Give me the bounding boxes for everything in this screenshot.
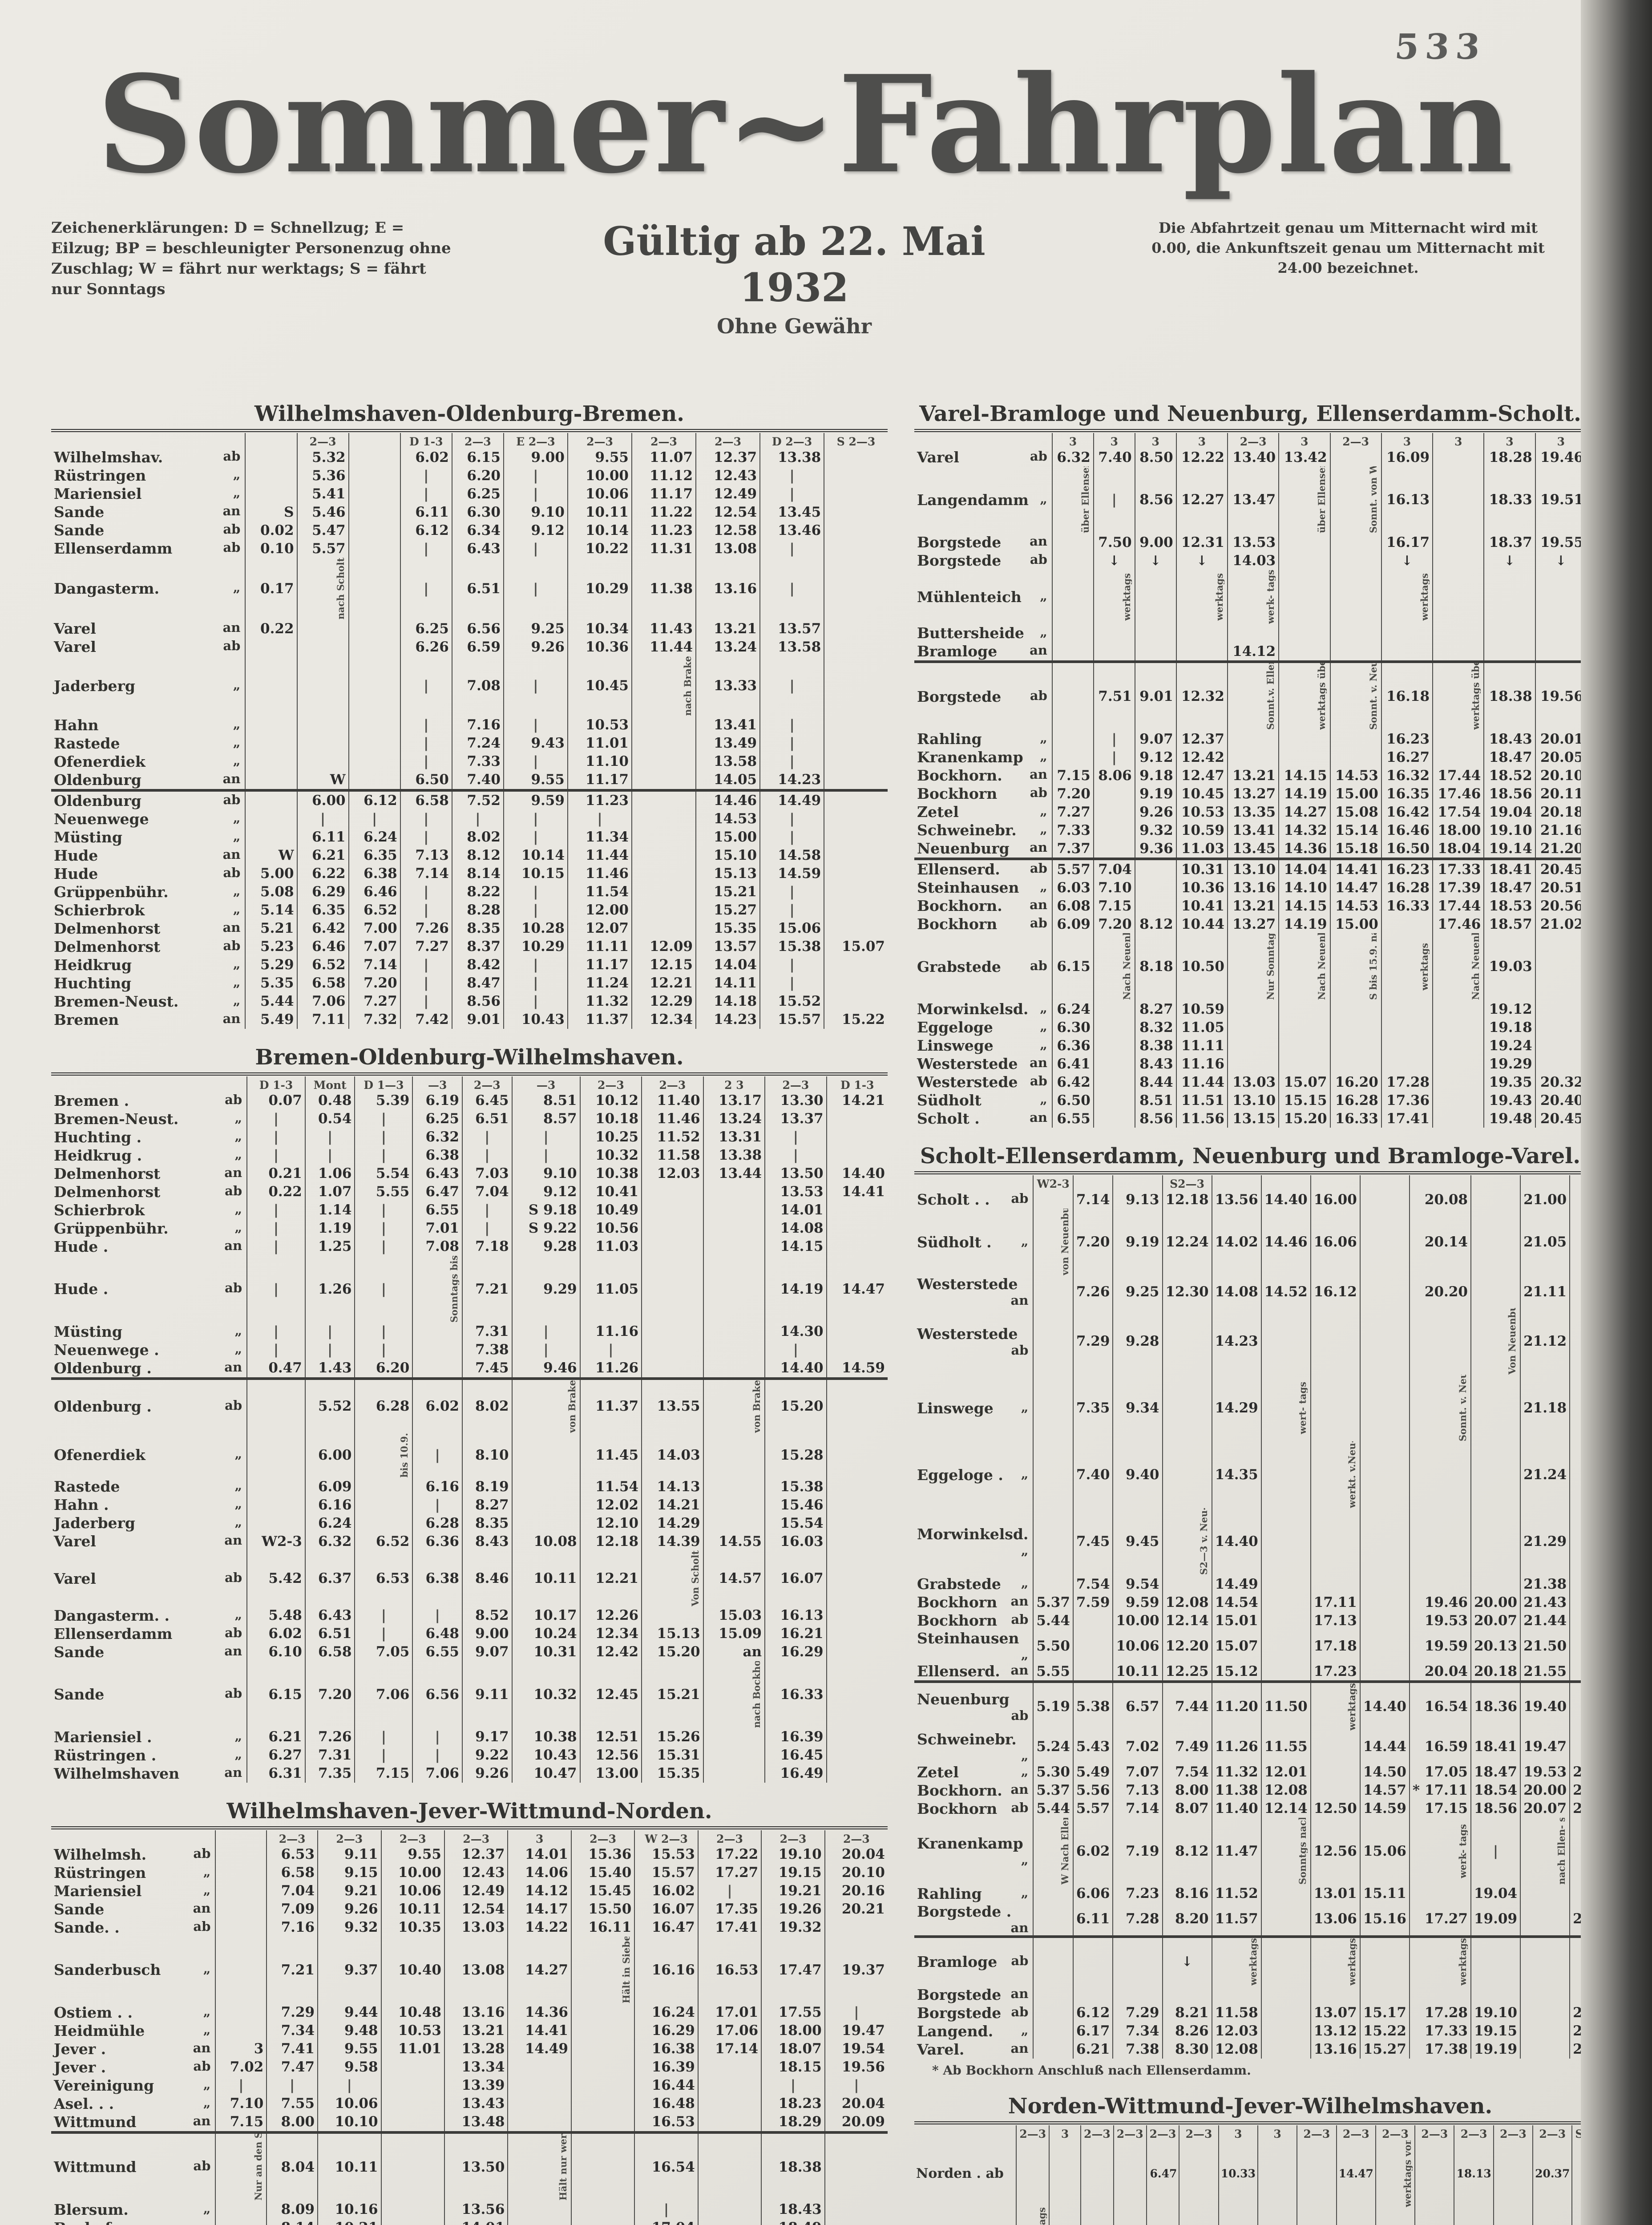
time-cell: 12.20 [1163, 1630, 1212, 1662]
station-cell: Scholt . .ab [914, 1190, 1033, 1209]
time-cell: 17.28 [1381, 1073, 1433, 1091]
table-row: Delmenhorstan0.211.065.546.437.039.1010.… [51, 1165, 888, 1183]
time-cell: | [512, 1128, 580, 1146]
time-cell: 18.22 [1454, 2207, 1493, 2225]
time-cell: 0.22 [247, 1183, 305, 1201]
time-cell: 12.08 [1212, 2040, 1261, 2059]
class-header-row: W2-3S2—3 [914, 1175, 1619, 1190]
time-cell: 13.21 [1228, 897, 1279, 915]
time-cell: 19.09 [1471, 1903, 1520, 1937]
station-cell: Dangasterm. .„ [51, 1606, 247, 1625]
time-cell: | [765, 1341, 827, 1359]
station-cell: Sandean [51, 1643, 247, 1661]
time-cell: 5.48 [247, 1606, 305, 1625]
station-cell: Grabstede„ [914, 1575, 1033, 1593]
time-cell: 18.00 [1433, 821, 1484, 839]
time-cell [824, 448, 888, 466]
time-cell: 7.03 [462, 1165, 512, 1183]
time-cell: 9.21 [318, 1882, 381, 1900]
time-cell [1471, 1937, 1520, 1986]
time-cell: 6.11 [297, 828, 349, 846]
time-cell: 18.43 [1484, 730, 1535, 748]
time-cell [1094, 1055, 1135, 1073]
time-cell: 13.58 [760, 638, 824, 656]
time-cell: 7.45 [462, 1359, 512, 1379]
time-cell: 10.53 [568, 716, 632, 734]
time-cell [571, 2113, 634, 2132]
time-cell [824, 716, 888, 734]
time-cell [1433, 1091, 1484, 1109]
time-cell: 5.36 [297, 466, 349, 485]
time-cell: 7.33 [1052, 821, 1094, 839]
time-cell [827, 1238, 888, 1256]
table-row: Bockhorn.an6.087.1510.4113.2114.1514.531… [914, 897, 1586, 915]
station-cell: Hudean [51, 846, 245, 865]
time-cell: | [634, 2201, 698, 2219]
time-cell: 6.22 [297, 865, 349, 883]
class-header-row: 33332—332—33333 [914, 433, 1586, 448]
time-cell [412, 1359, 462, 1379]
time-cell: 21.43 [1520, 1593, 1570, 1611]
time-cell [1114, 2207, 1147, 2225]
time-cell: 19.56 [825, 2058, 888, 2076]
table-title: Scholt-Ellenserdamm, Neuenburg und Braml… [914, 1143, 1586, 1174]
time-cell: 15.54 [765, 1514, 827, 1532]
time-cell: W [297, 771, 349, 790]
table-row: Varel.an6.217.388.3012.0813.1615.2717.38… [914, 2040, 1619, 2059]
time-cell: 16.29 [634, 2022, 698, 2040]
time-cell: 14.47 [827, 1256, 888, 1323]
time-cell: 16.23 [1381, 859, 1433, 878]
time-cell: 15.35 [642, 1764, 703, 1783]
time-cell [1433, 1073, 1484, 1091]
time-cell [297, 638, 349, 656]
time-cell: ↓ [1163, 1937, 1212, 1986]
time-cell [703, 1256, 765, 1323]
time-cell: 8.43 [1135, 1055, 1176, 1073]
time-cell: 18.47 [1484, 748, 1535, 766]
time-cell [1330, 570, 1381, 624]
time-cell [1261, 2004, 1311, 2022]
time-cell: 6.46 [297, 938, 349, 956]
time-cell [698, 2076, 761, 2095]
time-cell [1163, 1441, 1212, 1508]
time-cell [245, 810, 297, 828]
time-cell: | [760, 883, 824, 901]
time-cell [1330, 1018, 1381, 1036]
time-cell: 20.13 [1471, 1630, 1520, 1662]
time-cell: 9.00 [1135, 533, 1176, 551]
time-cell [1052, 570, 1094, 624]
time-cell: 7.32 [349, 1011, 400, 1029]
time-cell: 7.51 [1094, 662, 1135, 730]
table-row: Schierbrok„|1.14|6.55|S 9.1810.4914.01 [51, 1201, 888, 1219]
time-cell [827, 1514, 888, 1532]
time-cell: 19.26 [761, 1900, 824, 1918]
time-cell: 13.58 [696, 752, 760, 771]
train-class: 2—3 [1415, 2125, 1454, 2140]
time-cell: 10.08 [512, 1532, 580, 1550]
train-class: 2—3 [1454, 2125, 1493, 2140]
time-cell [1261, 1986, 1311, 2004]
train-class [1212, 1175, 1261, 1190]
time-cell: 14.40 [765, 1359, 827, 1379]
time-cell: 14.13 [642, 1477, 703, 1496]
time-cell [703, 1323, 765, 1341]
time-cell: 6.10 [247, 1643, 305, 1661]
time-cell: 9.15 [318, 1864, 381, 1882]
time-cell: 10.18 [580, 1110, 642, 1128]
time-cell: 7.06 [355, 1661, 412, 1728]
train-class: D 1-3 [247, 1076, 305, 1092]
time-cell: 5.46 [297, 503, 349, 521]
time-cell: 9.44 [318, 2003, 381, 2022]
time-cell: über Ellenserd. [1052, 466, 1094, 533]
time-cell [215, 2003, 267, 2022]
time-cell [698, 2132, 761, 2201]
time-cell [1381, 642, 1433, 662]
time-cell: 6.46 [349, 883, 400, 901]
time-cell [1073, 1611, 1113, 1630]
time-cell: 6.43 [305, 1606, 355, 1625]
station-cell: Westerstedean [914, 1055, 1052, 1073]
time-cell: 7.52 [452, 790, 504, 810]
station-cell: Mariensiel„ [51, 1882, 215, 1900]
time-cell: 11.32 [1212, 1763, 1261, 1781]
time-cell: | [247, 1323, 305, 1341]
time-cell: 9.11 [462, 1661, 512, 1728]
time-cell: | [355, 1728, 412, 1746]
time-cell [1114, 2140, 1147, 2207]
time-cell: 0.21 [247, 1165, 305, 1183]
time-cell: 14.36 [508, 2003, 571, 2022]
time-cell: | [512, 1323, 580, 1341]
time-cell [1073, 1937, 1113, 1986]
class-header-row: 2—3D 1-32—3E 2—32—32—32—3D 2—3S 2—3 [51, 433, 888, 448]
time-cell: 7.07 [349, 938, 400, 956]
time-cell [1228, 1036, 1279, 1055]
time-cell: 21.24 [1520, 1441, 1570, 1508]
time-cell: | [760, 956, 824, 974]
time-cell: 8.32 [1135, 1018, 1176, 1036]
train-class [1073, 1175, 1113, 1190]
time-cell: 6.38 [349, 865, 400, 883]
time-cell: 12.49 [444, 1882, 508, 1900]
time-cell: 13.27 [1228, 785, 1279, 803]
time-cell: 8.04 [267, 2132, 318, 2201]
station-cell: Mühlenteich„ [914, 570, 1052, 624]
table-row: Bremenan5.497.117.327.429.0110.4311.3712… [51, 1011, 888, 1029]
train-class: D 1-3 [827, 1076, 888, 1092]
time-cell: 9.48 [318, 2022, 381, 2040]
time-cell [1433, 570, 1484, 624]
time-cell: 12.42 [1176, 748, 1228, 766]
time-cell: 11.20 [1212, 1682, 1261, 1731]
time-cell: 8.00 [1163, 1781, 1212, 1800]
time-cell: an [703, 1643, 765, 1661]
time-cell: 7.29 [1113, 2004, 1162, 2022]
time-cell: 12.07 [568, 919, 632, 938]
station-cell: Bockhornab [914, 1800, 1033, 1818]
time-cell: 16.23 [1381, 730, 1433, 748]
time-cell: Nach Neuenburg werktags [1094, 933, 1135, 1000]
table-row: Heidkrug .„|||6.38||10.3211.5813.38| [51, 1146, 888, 1165]
time-cell: 10.31 [1176, 859, 1228, 878]
time-cell: 16.20 [1330, 1073, 1381, 1091]
time-cell [512, 1496, 580, 1514]
time-cell: | [825, 2003, 888, 2022]
time-cell: 6.37 [305, 1550, 355, 1606]
train-class [1410, 1175, 1471, 1190]
time-cell: 7.04 [267, 1882, 318, 1900]
station-cell: Südholt„ [914, 1091, 1052, 1109]
time-cell: 6.28 [355, 1379, 412, 1433]
time-cell [1094, 1018, 1135, 1036]
time-cell: | [400, 828, 452, 846]
time-cell: 7.14 [1073, 1190, 1113, 1209]
train-class: 2—3 [765, 1076, 827, 1092]
time-cell: 9.26 [462, 1764, 512, 1783]
time-cell [349, 752, 400, 771]
time-cell: | [412, 1606, 462, 1625]
time-cell: Sonntags bis 15.9. [412, 1256, 462, 1323]
time-cell: 19.32 [761, 1918, 824, 1937]
time-cell: | [504, 466, 568, 485]
time-cell: 0.02 [245, 521, 297, 539]
time-cell [632, 771, 696, 790]
time-cell [381, 2076, 444, 2095]
time-cell: 9.58 [318, 2058, 381, 2076]
table-row: Bockhornan5.377.599.5912.0814.5417.1119.… [914, 1593, 1619, 1611]
time-cell: 8.22 [452, 883, 504, 901]
time-cell [642, 1219, 703, 1238]
time-cell: 8.57 [512, 1110, 580, 1128]
time-cell: 17.39 [1433, 878, 1484, 897]
time-cell: 13.37 [765, 1110, 827, 1128]
train-class [215, 1830, 267, 1845]
time-cell [349, 716, 400, 734]
time-cell: 7.20 [349, 974, 400, 992]
table-row: Mariensiel„5.41|6.25|10.0611.1712.49| [51, 485, 888, 503]
time-cell: | [504, 883, 568, 901]
time-cell: 8.14 [452, 865, 504, 883]
time-cell: 14.30 [765, 1323, 827, 1341]
train-class: 2—3 [1228, 433, 1279, 448]
time-cell [1049, 2140, 1081, 2207]
time-cell: ↓ [1135, 551, 1176, 570]
time-cell: 16.16 [634, 1937, 698, 2003]
train-class: 3 [1381, 433, 1433, 448]
time-cell: 9.55 [504, 771, 568, 790]
timetable-t5: Wilhelmshaven-Jever-Wittmund-Norden.2—32… [51, 1798, 888, 2225]
time-cell [824, 485, 888, 503]
time-cell [245, 638, 297, 656]
time-cell: 16.54 [1410, 1682, 1471, 1731]
time-cell: 14.29 [642, 1514, 703, 1532]
time-cell: 12.31 [1176, 533, 1228, 551]
time-cell: 6.26 [400, 638, 452, 656]
time-cell: 16.06 [1311, 1209, 1360, 1275]
time-cell: 15.40 [571, 1864, 634, 1882]
time-cell: 6.00 [305, 1433, 355, 1477]
time-cell: 16.45 [765, 1746, 827, 1764]
time-cell [1052, 748, 1094, 766]
time-cell: 6.51 [305, 1625, 355, 1643]
time-cell: 7.34 [1113, 2022, 1162, 2040]
time-cell: 10.17 [512, 1606, 580, 1625]
time-cell: 8.14 [267, 2219, 318, 2225]
time-cell: 16.29 [765, 1643, 827, 1661]
time-cell [381, 2132, 444, 2201]
station-cell: Bremen-Neust.„ [51, 1110, 247, 1128]
time-cell: ↓ [1176, 551, 1228, 570]
station-cell: Wilhelmshav.ab [51, 448, 245, 466]
time-cell: 6.11 [400, 503, 452, 521]
time-cell [824, 790, 888, 810]
time-cell: 10.59 [1176, 1000, 1228, 1018]
time-cell: 17.46 [1433, 785, 1484, 803]
time-cell: 19.19 [1471, 2040, 1520, 2059]
time-cell: 16.35 [1381, 785, 1433, 803]
midnight-note: Die Abfahrtzeit genau um Mitternacht wir… [1137, 218, 1559, 278]
time-cell: 18.23 [761, 2095, 824, 2113]
time-cell [824, 752, 888, 771]
time-cell: 16.03 [765, 1532, 827, 1550]
time-cell: 16.50 [1381, 839, 1433, 859]
time-cell: 17.33 [1410, 2022, 1471, 2040]
time-cell: 10.42 [1219, 2207, 1258, 2225]
time-cell: 6.38 [412, 1146, 462, 1165]
time-cell: 13.10 [1228, 1091, 1279, 1109]
time-cell [1135, 570, 1176, 624]
timetable-grid: W2-3S2—3Scholt . .ab7.149.1312.1813.5614… [914, 1175, 1619, 2059]
time-cell: 6.00 [297, 790, 349, 810]
no-guarantee: Ohne Gewähr [549, 314, 1039, 338]
time-cell: 12.14 [1261, 1800, 1311, 1818]
time-cell: 6.47 [1147, 2140, 1179, 2207]
time-cell: 7.14 [400, 865, 452, 883]
time-cell [1261, 1885, 1311, 1903]
time-cell: | [400, 734, 452, 752]
station-cell: Wittmundab [51, 2132, 215, 2201]
time-cell: 6.51 [452, 558, 504, 619]
table-footnote: * Ab Bockhorn Anschluß nach Ellenserdamm… [932, 2063, 1586, 2078]
time-cell: 11.11 [568, 938, 632, 956]
time-cell: 18.41 [1484, 859, 1535, 878]
time-cell: 6.25 [452, 485, 504, 503]
timetable-grid: 2—3D 1-32—3E 2—32—32—32—3D 2—3S 2—3Wilhe… [51, 433, 888, 1029]
time-cell: | [355, 1256, 412, 1323]
station-cell: Müsting„ [51, 1323, 247, 1341]
time-cell: 14.35 [1212, 1441, 1261, 1508]
time-cell: 11.52 [642, 1128, 703, 1146]
time-cell [827, 1643, 888, 1661]
time-cell: 18.07 [761, 2040, 824, 2058]
time-cell: 10.16 [318, 2201, 381, 2219]
time-cell: 14.06 [508, 1864, 571, 1882]
train-class: 3 [1094, 433, 1135, 448]
time-cell: 7.10 [215, 2095, 267, 2113]
time-cell [247, 1496, 305, 1514]
time-cell: 14.46 [1261, 1209, 1311, 1275]
time-cell [703, 1359, 765, 1379]
time-cell: 7.59 [1073, 1593, 1113, 1611]
time-cell: 8.02 [462, 1379, 512, 1433]
table-row: Mariensiel .„6.217.26||9.1710.3812.5115.… [51, 1728, 888, 1746]
timetable-grid: D 1-3MontD 1—3—32—3—32—32—32 32—3D 1-3Br… [51, 1076, 888, 1783]
time-cell: 7.40 [1073, 1441, 1113, 1508]
time-cell: 10.59 [1176, 821, 1228, 839]
time-cell: 15.38 [765, 1477, 827, 1496]
time-cell: 20.07 [1471, 1611, 1520, 1630]
time-cell: 6.45 [462, 1092, 512, 1110]
time-cell [703, 1219, 765, 1238]
train-class: 2—3 [267, 1830, 318, 1845]
table-row: Sande. .ab7.169.3210.3513.0314.2216.1116… [51, 1918, 888, 1937]
station-cell: Varel.an [914, 2040, 1033, 2059]
time-cell [827, 1341, 888, 1359]
table-row: Huchting„5.356.587.20|8.47|11.2412.2114.… [51, 974, 888, 992]
time-cell [1471, 1986, 1520, 2004]
time-cell: 7.06 [412, 1764, 462, 1783]
time-cell [1410, 1441, 1471, 1508]
time-cell: 12.49 [696, 485, 760, 503]
time-cell [571, 2022, 634, 2040]
table-row: Sandean7.099.2610.1112.5414.1715.5016.07… [51, 1900, 888, 1918]
time-cell: 6.09 [305, 1477, 355, 1496]
time-cell [703, 1477, 765, 1496]
time-cell: 9.59 [1113, 1593, 1162, 1611]
time-cell: 8.56 [1135, 466, 1176, 533]
time-cell: 5.42 [247, 1550, 305, 1606]
time-cell: 16.47 [634, 1918, 698, 1937]
table-row: Oldenburg .ab5.526.286.028.02von Brake11… [51, 1379, 888, 1433]
train-class: S 2—3 [824, 433, 888, 448]
time-cell: 10.15 [504, 865, 568, 883]
time-cell [1279, 624, 1330, 642]
time-cell: 6.17 [1073, 2022, 1113, 2040]
time-cell: 16.13 [1381, 466, 1433, 533]
time-cell [632, 846, 696, 865]
time-cell: 21.12 [1520, 1308, 1570, 1375]
time-cell: 8.12 [1163, 1818, 1212, 1885]
time-cell [245, 716, 297, 734]
time-cell [1033, 1190, 1073, 1209]
time-cell: | [400, 558, 452, 619]
time-cell: 20.00 [1471, 1593, 1520, 1611]
table-title: Bremen-Oldenburg-Wilhelmshaven. [51, 1044, 888, 1076]
time-cell [1033, 1275, 1073, 1308]
time-cell: 12.00 [568, 901, 632, 919]
time-cell: | [760, 485, 824, 503]
train-class: —3 [512, 1076, 580, 1092]
time-cell: 15.15 [1279, 1091, 1330, 1109]
column-left: Wilhelmshaven-Oldenburg-Bremen.2—3D 1-32… [51, 400, 888, 2225]
station-cell: Bramlogean [914, 642, 1052, 662]
table-row: Ellenserd.an5.5510.1112.2515.1217.2320.0… [914, 1662, 1619, 1682]
time-cell: 6.36 [412, 1532, 462, 1550]
time-cell: 0.10 [245, 539, 297, 558]
time-cell: 13.03 [1228, 1073, 1279, 1091]
time-cell [1484, 570, 1535, 624]
station-cell: Bramlogeab [914, 1937, 1033, 1986]
time-cell: 5.44 [245, 992, 297, 1011]
time-cell: 10.40 [381, 1937, 444, 2003]
time-cell [1261, 1508, 1311, 1575]
time-cell: | [247, 1146, 305, 1165]
time-cell: 11.40 [642, 1092, 703, 1110]
time-cell [827, 1550, 888, 1606]
